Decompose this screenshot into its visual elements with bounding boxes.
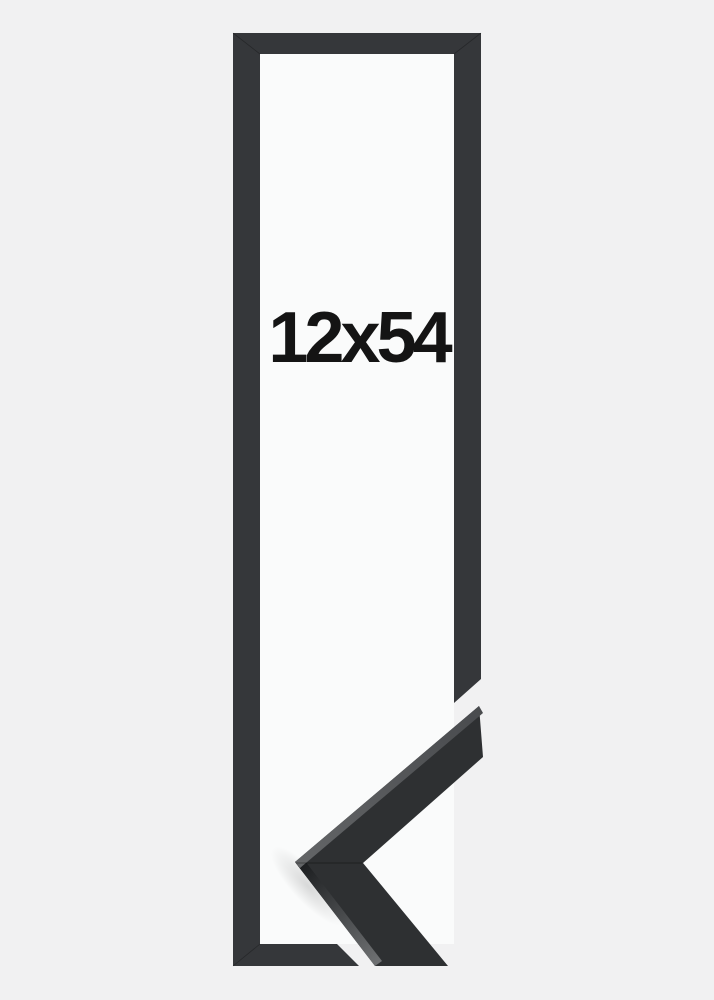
- frame-border-left: [233, 33, 260, 966]
- frame-border-top: [233, 33, 481, 54]
- frame-graphic: [0, 0, 714, 1000]
- frame-border-bottom: [233, 944, 359, 966]
- frame-size-label: 12x54: [233, 276, 481, 400]
- product-image: 12x54: [0, 0, 714, 1000]
